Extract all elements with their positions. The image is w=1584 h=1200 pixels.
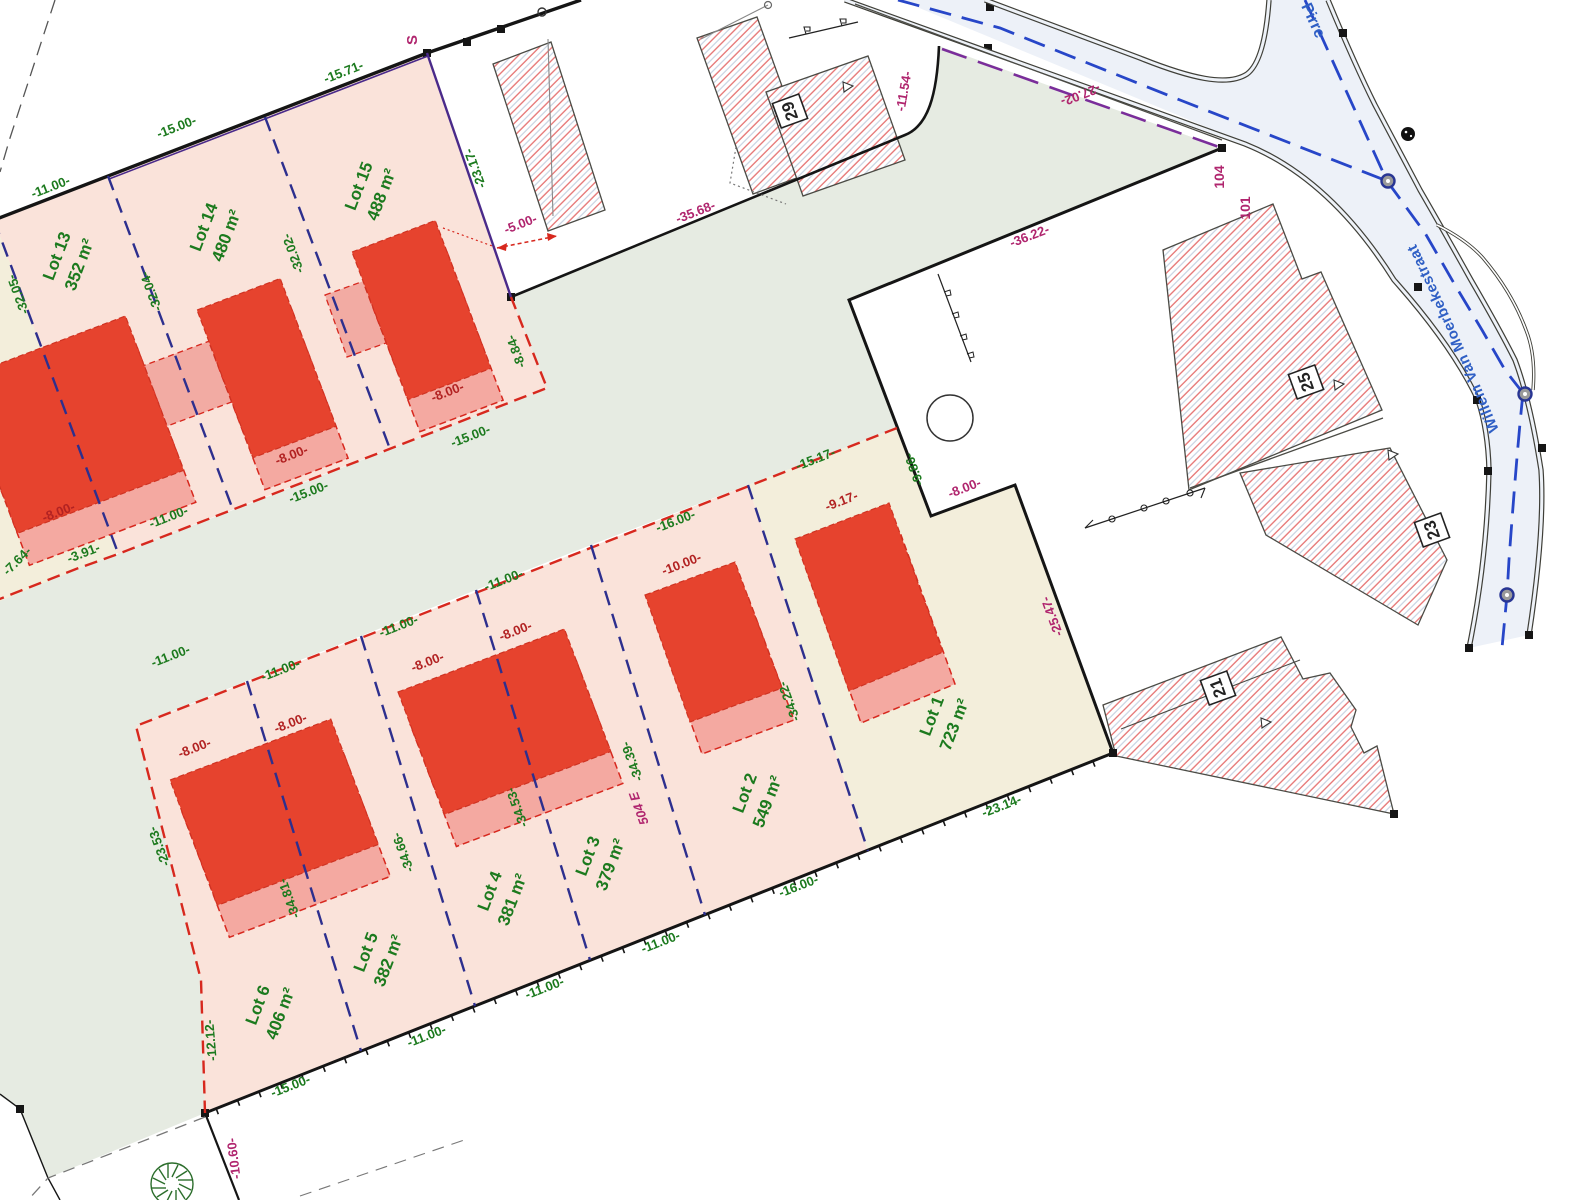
- svg-text:101: 101: [1237, 196, 1253, 220]
- svg-text:S: S: [404, 35, 421, 45]
- svg-text:104: 104: [1211, 165, 1227, 189]
